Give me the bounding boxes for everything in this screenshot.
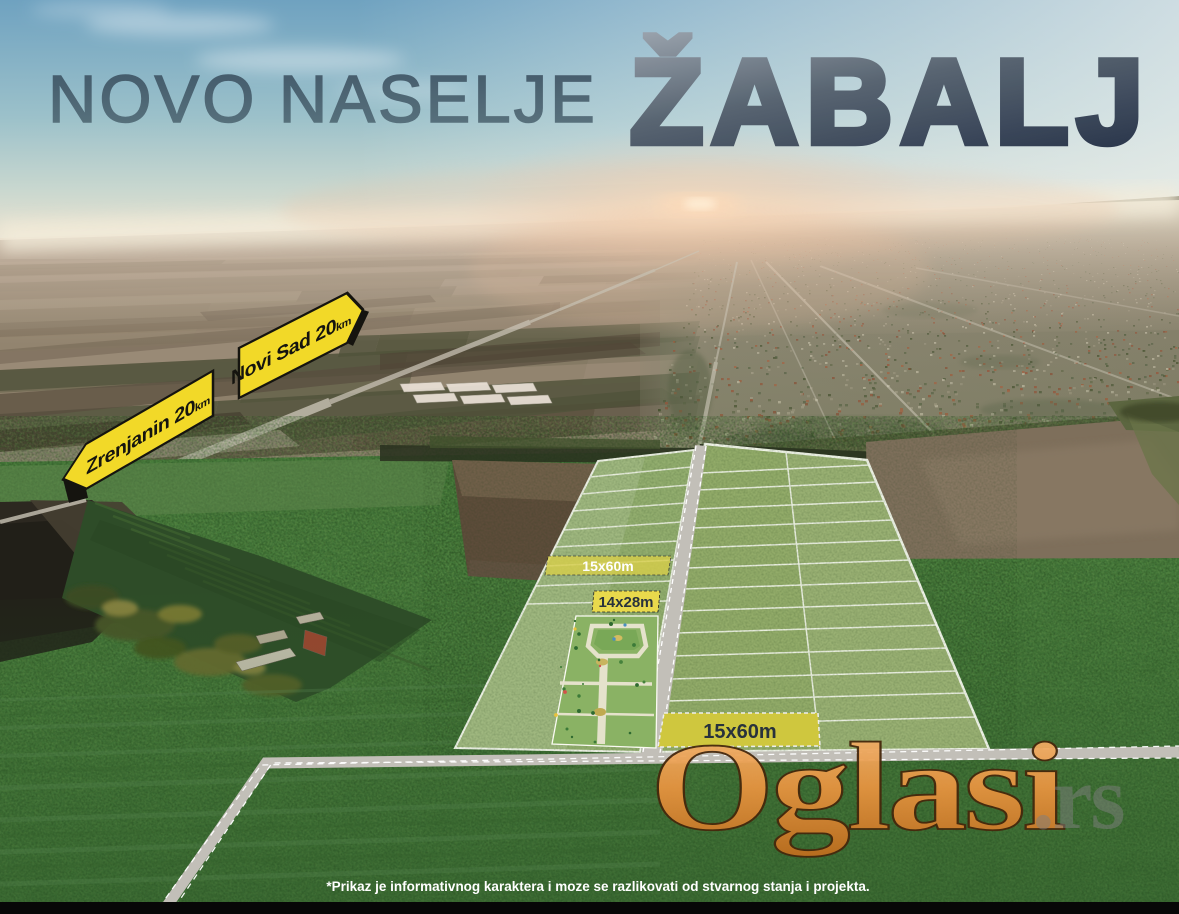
svg-text:14x28m: 14x28m xyxy=(598,594,653,611)
svg-text:NOVO NASELJE: NOVO NASELJE xyxy=(48,62,598,137)
svg-text:.rs: .rs xyxy=(1032,749,1123,848)
svg-text:ŽABALJ: ŽABALJ xyxy=(630,35,1151,169)
svg-text:15x60m: 15x60m xyxy=(582,558,633,574)
svg-text:*Prikaz je informativnog karak: *Prikaz je informativnog karaktera i moz… xyxy=(326,879,869,894)
svg-text:Oglasi: Oglasi xyxy=(650,718,1064,857)
